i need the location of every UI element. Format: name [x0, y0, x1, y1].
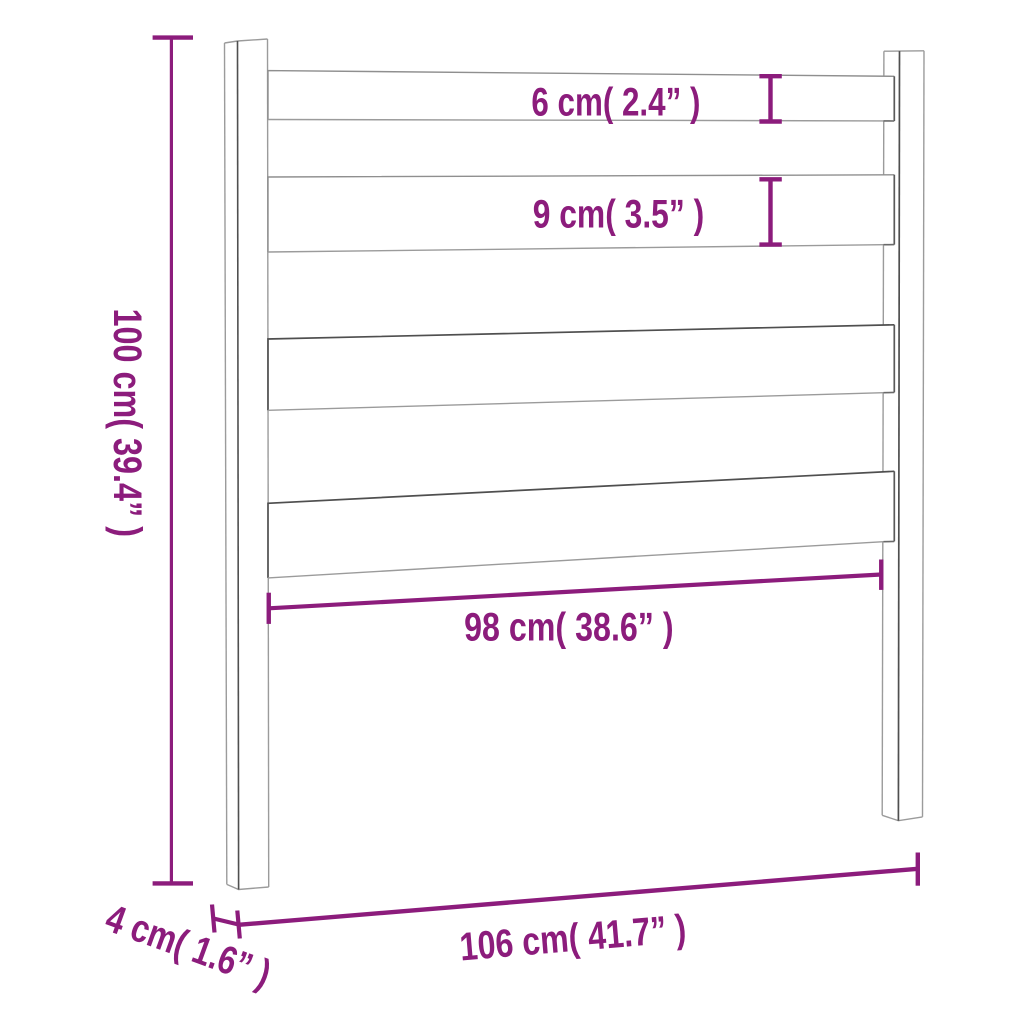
svg-text:98 cm( 38.6” ): 98 cm( 38.6” ) — [464, 606, 673, 650]
svg-text:9 cm( 3.5” ): 9 cm( 3.5” ) — [533, 193, 705, 237]
svg-text:6 cm( 2.4” ): 6 cm( 2.4” ) — [531, 81, 700, 125]
svg-text:100 cm( 39.4” ): 100 cm( 39.4” ) — [105, 309, 149, 538]
